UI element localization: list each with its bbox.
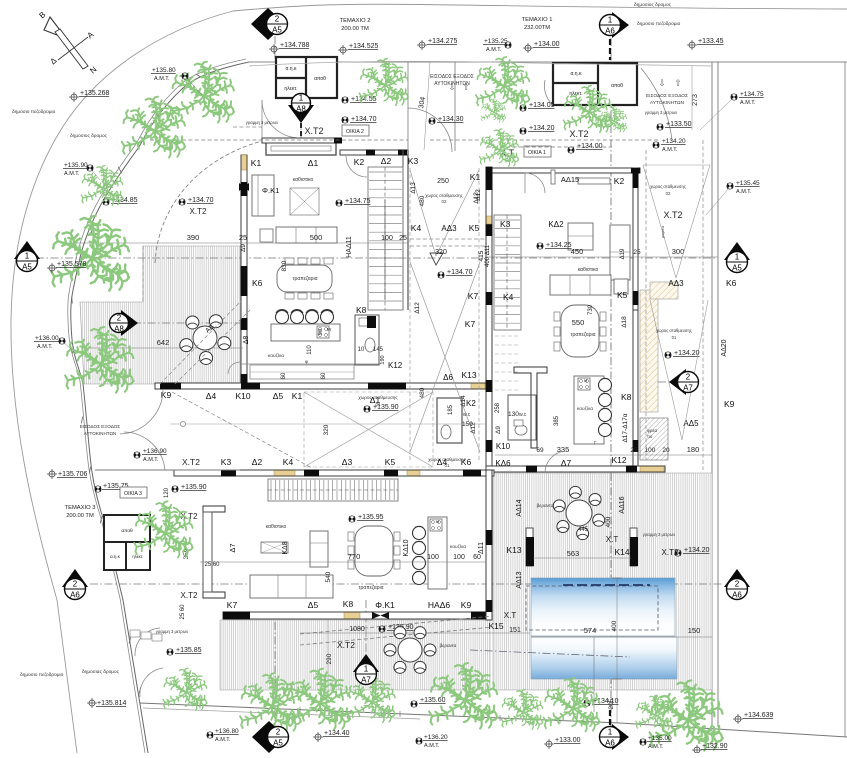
svg-text:+135.90: +135.90 (181, 484, 207, 491)
svg-text:+135.00: +135.00 (648, 735, 672, 742)
svg-text:+135.95: +135.95 (358, 514, 384, 521)
svg-text:ΑΔ3: ΑΔ3 (668, 279, 684, 288)
svg-text:+134.40: +134.40 (324, 730, 350, 737)
svg-text:Α.Μ.Τ.: Α.Μ.Τ. (740, 100, 756, 106)
svg-text:βεραντα: βεραντα (440, 643, 457, 648)
svg-text:K4: K4 (503, 292, 514, 302)
svg-text:130: 130 (508, 411, 519, 418)
svg-text:+134.20: +134.20 (662, 138, 686, 145)
svg-text:M: M (584, 378, 587, 383)
svg-text:αποθ: αποθ (314, 76, 326, 82)
svg-text:γραμμη 3 μετρων: γραμμη 3 μετρων (645, 110, 677, 115)
svg-text:Δ11: Δ11 (485, 244, 491, 255)
svg-text:K6: K6 (726, 278, 737, 288)
svg-text:Δ12: Δ12 (475, 189, 482, 201)
svg-text:ΕΙΣΟΔΟΣ ΕΞΟΔΟΣ: ΕΙΣΟΔΟΣ ΕΞΟΔΟΣ (80, 424, 120, 429)
svg-text:60: 60 (321, 372, 327, 379)
svg-text:α.η.κ: α.η.κ (571, 71, 582, 77)
svg-text:α.η.κ: α.η.κ (286, 66, 297, 72)
svg-text:69: 69 (536, 447, 544, 454)
svg-text:Α.Μ.Τ.: Α.Μ.Τ. (424, 743, 440, 749)
svg-text:60: 60 (281, 372, 287, 379)
svg-text:480: 480 (419, 195, 426, 206)
svg-text:+134.70: +134.70 (188, 197, 214, 204)
svg-text:καθιστικο: καθιστικο (578, 267, 599, 273)
svg-text:K8: K8 (343, 599, 354, 609)
svg-text:Δ7: Δ7 (561, 458, 572, 468)
svg-text:ΑΔ15: ΑΔ15 (561, 175, 579, 184)
svg-text:K15: K15 (488, 621, 503, 631)
svg-text:Α7: Α7 (683, 384, 693, 393)
svg-text:Δ4: Δ4 (206, 391, 217, 401)
svg-text:K4: K4 (283, 457, 294, 467)
svg-text:ΚΔ10: ΚΔ10 (403, 539, 410, 556)
svg-text:K8: K8 (356, 305, 367, 315)
svg-text:K7: K7 (227, 600, 238, 610)
svg-text:K4: K4 (411, 223, 422, 233)
svg-text:100: 100 (453, 554, 465, 561)
svg-text:w.c: w.c (463, 412, 471, 418)
svg-text:K12: K12 (388, 361, 403, 370)
svg-text:+136.20: +136.20 (424, 734, 448, 741)
svg-text:ΚΔ8: ΚΔ8 (282, 541, 289, 554)
svg-text:K3: K3 (408, 156, 419, 166)
svg-text:100: 100 (427, 554, 439, 561)
svg-text:+135.85: +135.85 (176, 647, 202, 654)
svg-text:Α.Μ.Τ.: Α.Μ.Τ. (648, 744, 664, 750)
svg-text:+134.525: +134.525 (349, 43, 378, 50)
svg-text:τιο: τιο (647, 434, 653, 439)
svg-text:Φ.Κ1: Φ.Κ1 (262, 186, 279, 195)
svg-text:02: 02 (442, 199, 447, 204)
svg-text:Δ9: Δ9 (495, 426, 502, 434)
svg-text:K1: K1 (470, 172, 481, 182)
svg-text:540: 540 (325, 571, 332, 582)
svg-text:+136.90: +136.90 (143, 448, 167, 455)
svg-text:320: 320 (435, 249, 447, 256)
svg-text:Α5: Α5 (732, 264, 742, 273)
svg-text:τραπεζαρια: τραπεζαρια (359, 585, 384, 591)
svg-text:1080: 1080 (349, 626, 365, 633)
svg-text:K6: K6 (461, 457, 472, 467)
svg-text:ΕΙΣΟΔΟΣ ΕΞΟΔΟΣ: ΕΙΣΟΔΟΣ ΕΞΟΔΟΣ (646, 93, 688, 99)
svg-text:150: 150 (688, 626, 701, 635)
svg-text:385: 385 (554, 415, 560, 426)
svg-text:+134.70: +134.70 (351, 116, 377, 123)
svg-text:ΑΔ3: ΑΔ3 (441, 224, 457, 233)
svg-text:X.T2: X.T2 (663, 210, 682, 220)
svg-text:χωρος σταθμευσης: χωρος σταθμευσης (650, 184, 686, 189)
svg-text:κουζίνα: κουζίνα (577, 406, 593, 412)
svg-text:X.T2: X.T2 (304, 126, 323, 136)
svg-text:250: 250 (437, 178, 449, 185)
svg-text:+134.30: +134.30 (438, 116, 464, 123)
svg-text:1: 1 (364, 665, 369, 674)
svg-text:δημοσιο πεζοδρομιο: δημοσιο πεζοδρομιο (20, 672, 64, 678)
svg-text:K7: K7 (468, 291, 479, 301)
svg-text:1: 1 (608, 728, 613, 737)
svg-text:ΑΔ14: ΑΔ14 (516, 499, 523, 516)
svg-text:+135.45: +135.45 (736, 180, 760, 187)
svg-text:φ: φ (305, 359, 308, 364)
svg-text:Α6: Α6 (605, 739, 615, 748)
svg-text:Φ.Κ1: Φ.Κ1 (375, 600, 395, 610)
svg-text:258: 258 (495, 402, 501, 413)
svg-text:Α.Μ.Τ.: Α.Μ.Τ. (64, 171, 80, 177)
svg-text:δημοσιας δρομος: δημοσιας δρομος (82, 669, 120, 675)
svg-text:+135.268: +135.268 (80, 90, 109, 97)
svg-text:Α.Μ.Τ.: Α.Μ.Τ. (662, 147, 678, 153)
svg-text:574: 574 (584, 626, 597, 635)
svg-text:K3: K3 (500, 219, 511, 229)
svg-text:730: 730 (588, 304, 594, 315)
svg-text:Α5: Α5 (272, 26, 282, 35)
svg-text:+134.05: +134.05 (529, 102, 555, 109)
svg-text:300: 300 (672, 247, 685, 256)
svg-text:232.00ΤΜ: 232.00ΤΜ (524, 25, 550, 31)
svg-text:w.c: w.c (519, 412, 527, 418)
svg-text:2: 2 (686, 373, 691, 382)
svg-text:ΗΑΔ6: ΗΑΔ6 (428, 600, 450, 610)
svg-text:+136.00: +136.00 (35, 335, 59, 342)
svg-text:ΑΥΤΟΚΙΝΗΤΩΝ: ΑΥΤΟΚΙΝΗΤΩΝ (434, 81, 470, 87)
svg-text:550: 550 (572, 318, 585, 327)
svg-text:200.00 ΤΜ: 200.00 ΤΜ (341, 26, 369, 32)
svg-text:1: 1 (299, 94, 304, 103)
svg-text:25: 25 (630, 447, 638, 454)
svg-text:X.T2: X.T2 (182, 457, 200, 467)
svg-text:K13: K13 (461, 370, 476, 380)
svg-text:ηλεκτ.: ηλεκτ. (284, 86, 297, 92)
svg-text:κουζίνα: κουζίνα (268, 353, 284, 359)
svg-text:Δ19: Δ19 (620, 248, 626, 259)
svg-text:+134.275: +134.275 (428, 38, 457, 45)
svg-text:Δ18: Δ18 (621, 316, 628, 328)
svg-text:+132.90: +132.90 (702, 743, 728, 750)
svg-text:K1: K1 (251, 158, 262, 168)
svg-text:Δ4: Δ4 (437, 457, 448, 467)
svg-text:450: 450 (571, 247, 584, 256)
svg-text:120: 120 (164, 487, 170, 498)
svg-text:563: 563 (567, 549, 580, 558)
svg-text:2: 2 (73, 580, 78, 589)
svg-text:+134.20: +134.20 (674, 350, 700, 357)
svg-text:δημοσιος δρομος: δημοσιος δρομος (634, 2, 672, 8)
svg-text:κουζίνα: κουζίνα (450, 544, 466, 550)
svg-text:⇩: ⇩ (658, 78, 666, 88)
svg-text:Α.Μ.Τ.: Α.Μ.Τ. (154, 76, 170, 82)
svg-text:K1: K1 (292, 391, 303, 401)
svg-text:02: 02 (666, 191, 671, 196)
svg-text:Α8: Α8 (114, 325, 124, 334)
svg-text:273: 273 (692, 94, 699, 106)
svg-text:ΚΔ6: ΚΔ6 (495, 459, 511, 468)
svg-text:K8: K8 (621, 392, 632, 402)
svg-text:K12: K12 (611, 455, 626, 465)
svg-text:Δ3: Δ3 (342, 457, 353, 467)
svg-text:Δ8: Δ8 (243, 336, 250, 345)
svg-text:X.T: X.T (606, 535, 619, 544)
svg-text:ΗΑΔ11: ΗΑΔ11 (346, 236, 353, 258)
svg-text:γραμμη 3 μετρων: γραμμη 3 μετρων (246, 120, 278, 125)
svg-text:K5: K5 (469, 223, 480, 233)
svg-text:αποθ: αποθ (611, 83, 623, 89)
svg-text:400: 400 (605, 516, 612, 527)
svg-text:ΑΔ20: ΑΔ20 (721, 339, 728, 356)
svg-text:K9: K9 (724, 399, 735, 409)
svg-text:200.00 ΤΜ: 200.00 ΤΜ (66, 513, 94, 519)
svg-text:ΤΕΜΑΧΙΟ 1: ΤΕΜΑΧΙΟ 1 (522, 17, 553, 23)
svg-text:+134.20: +134.20 (529, 125, 555, 132)
svg-text:25: 25 (239, 233, 247, 242)
svg-text:185: 185 (448, 404, 454, 415)
svg-text:K5: K5 (617, 290, 628, 300)
svg-text:α.η.κ: α.η.κ (110, 554, 121, 559)
svg-text:X.T2: X.T2 (190, 207, 207, 216)
svg-text:180: 180 (687, 445, 700, 454)
svg-text:Α.Μ.Τ.: Α.Μ.Τ. (143, 457, 159, 463)
svg-text:390: 390 (187, 233, 200, 242)
svg-text:γραμμη 3 μετρων: γραμμη 3 μετρων (643, 532, 675, 537)
svg-text:K9: K9 (461, 600, 472, 610)
svg-text:Δ5: Δ5 (273, 391, 284, 401)
svg-text:+135.60: +135.60 (420, 697, 446, 704)
svg-text:Δ5: Δ5 (308, 600, 319, 610)
svg-text:γραμμη 3 μετρων: γραμμη 3 μετρων (156, 629, 188, 634)
svg-text:ΚΔ2: ΚΔ2 (548, 220, 564, 229)
svg-text:Δ9: Δ9 (240, 244, 247, 252)
svg-text:ΤΕΜΑΧΙΟ 3: ΤΕΜΑΧΙΟ 3 (65, 505, 96, 511)
svg-text:+134.25: +134.25 (546, 242, 572, 249)
svg-text:+134.00: +134.00 (577, 143, 603, 150)
svg-text:642: 642 (157, 338, 170, 347)
svg-text:ΑΥΤΟΚΙΝΗΤΩΝ: ΑΥΤΟΚΙΝΗΤΩΝ (650, 100, 685, 106)
svg-text:δημοσιο πεζοδρομιο: δημοσιο πεζοδρομιο (12, 109, 56, 115)
svg-text:K13: K13 (506, 545, 521, 555)
svg-text:Δ12: Δ12 (470, 422, 477, 434)
svg-text:Δ7: Δ7 (228, 543, 237, 552)
svg-text:K10: K10 (496, 442, 511, 451)
svg-text:+133.00: +133.00 (555, 737, 581, 744)
svg-text:Δ1: Δ1 (308, 158, 319, 168)
svg-text:X.T: X.T (504, 611, 517, 620)
svg-text:ΟΙΚΙΑ 1: ΟΙΚΙΑ 1 (528, 150, 546, 156)
svg-text:1: 1 (25, 252, 30, 261)
svg-text:145: 145 (373, 347, 384, 353)
svg-text:25 60: 25 60 (204, 562, 220, 568)
svg-text:τραπεζαρια: τραπεζαρια (571, 332, 596, 338)
svg-text:+135.25: +135.25 (484, 38, 508, 45)
svg-text:Δ2: Δ2 (381, 156, 392, 166)
svg-text:Δ13: Δ13 (410, 182, 417, 194)
svg-text:K6: K6 (252, 278, 263, 288)
svg-text:90: 90 (318, 329, 324, 335)
svg-text:K10: K10 (235, 391, 250, 401)
svg-text:2: 2 (117, 314, 122, 323)
svg-text:1: 1 (735, 253, 740, 262)
svg-text:Α6: Α6 (732, 591, 742, 600)
svg-text:60: 60 (473, 554, 481, 561)
svg-text:445: 445 (578, 527, 589, 533)
svg-text:K2: K2 (354, 157, 365, 167)
svg-text:+134.75: +134.75 (740, 91, 764, 98)
svg-text:X.T2: X.T2 (569, 129, 588, 139)
svg-text:1: 1 (608, 16, 613, 25)
svg-text:καθιστικο: καθιστικο (266, 524, 287, 530)
svg-text:Α.Μ.Τ.: Α.Μ.Τ. (37, 344, 53, 350)
svg-text:ραμπα: ραμπα (660, 225, 665, 238)
svg-text:K14: K14 (614, 547, 629, 557)
svg-text:K3: K3 (221, 457, 232, 467)
svg-text:ΕΙΣΟΔΟΣ ΕΞΟΔΟΣ: ΕΙΣΟΔΟΣ ΕΞΟΔΟΣ (430, 74, 474, 80)
svg-text:+135.706: +135.706 (58, 471, 87, 478)
svg-text:+135.90: +135.90 (64, 162, 88, 169)
svg-text:Δ12: Δ12 (414, 302, 421, 314)
svg-text:10: 10 (358, 347, 365, 353)
svg-text:καθιστικο: καθιστικο (293, 177, 314, 183)
svg-text:ΑΔ16: ΑΔ16 (619, 496, 626, 513)
svg-text:βεραντα: βεραντα (537, 503, 554, 508)
svg-text:2: 2 (276, 728, 281, 737)
svg-text:αποθ: αποθ (121, 528, 133, 534)
svg-text:⇧: ⇧ (674, 78, 682, 88)
svg-text:Α6: Α6 (605, 27, 615, 36)
svg-text:Α5: Α5 (273, 739, 283, 748)
svg-text:415: 415 (478, 250, 485, 261)
svg-text:Δ2: Δ2 (252, 457, 263, 467)
svg-text:830: 830 (281, 260, 288, 271)
svg-text:Δ1: Δ1 (370, 395, 381, 405)
svg-text:K7: K7 (465, 319, 476, 329)
svg-text:Α.Μ.Τ.: Α.Μ.Τ. (215, 737, 231, 743)
svg-text:ΟΙΚΙΑ 3: ΟΙΚΙΑ 3 (124, 491, 142, 497)
svg-text:K2: K2 (466, 399, 476, 408)
svg-text:Α8: Α8 (296, 105, 306, 114)
svg-text:+134.70: +134.70 (447, 269, 473, 276)
svg-text:770: 770 (348, 552, 361, 561)
svg-text:ΤΕΜΑΧΙΟ 2: ΤΕΜΑΧΙΟ 2 (340, 18, 371, 24)
svg-text:K5: K5 (385, 457, 396, 467)
svg-text:Α.Μ.Τ.: Α.Μ.Τ. (486, 47, 502, 53)
svg-text:X.T2: X.T2 (337, 640, 355, 650)
svg-text:110: 110 (307, 345, 313, 355)
svg-text:+134.639: +134.639 (744, 712, 773, 719)
svg-text:400: 400 (485, 256, 491, 267)
svg-text:χωρος σταθμευσης: χωρος σταθμευσης (425, 193, 462, 198)
svg-text:+135.90: +135.90 (373, 404, 399, 411)
svg-text:320: 320 (323, 424, 330, 435)
svg-text:ΑΔ13: ΑΔ13 (516, 571, 523, 588)
svg-text:+134.75: +134.75 (345, 198, 371, 205)
svg-text:Δ17-Δ17α: Δ17-Δ17α (622, 413, 629, 442)
svg-text:M: M (436, 519, 439, 524)
svg-text:χωρος σταθμευσης: χωρος σταθμευσης (656, 328, 692, 333)
svg-text:δημοσιο πεζοδρομιο: δημοσιο πεζοδρομιο (637, 21, 681, 27)
svg-text:01: 01 (672, 335, 677, 340)
svg-text:2: 2 (275, 15, 280, 24)
svg-text:+134.20: +134.20 (684, 547, 710, 554)
svg-text:+133.50: +133.50 (666, 121, 692, 128)
svg-text:Α5: Α5 (22, 263, 32, 272)
svg-text:K2: K2 (614, 176, 625, 186)
svg-text:20: 20 (662, 447, 670, 454)
svg-text:25: 25 (633, 249, 641, 256)
svg-text:+136.80: +136.80 (215, 728, 239, 735)
svg-text:τραπεζαρια: τραπεζαρια (293, 276, 318, 282)
svg-text:ΑΥΤΟΚΙΝΗΤΩΝ: ΑΥΤΟΚΙΝΗΤΩΝ (84, 431, 117, 436)
svg-text:δημοσιος δρομος: δημοσιος δρομος (70, 133, 108, 139)
svg-text:Α.Μ.Τ.: Α.Μ.Τ. (736, 189, 752, 195)
svg-text:+135.80: +135.80 (152, 67, 176, 74)
svg-text:290: 290 (326, 653, 333, 664)
svg-text:+135.814: +135.814 (97, 700, 126, 707)
svg-text:500: 500 (310, 233, 323, 242)
svg-text:+133.45: +133.45 (698, 38, 724, 45)
svg-text:φρεα: φρεα (647, 428, 657, 433)
svg-text:+135.578: +135.578 (57, 261, 86, 268)
svg-text:X.T2: X.T2 (181, 591, 198, 600)
svg-text:ΟΙΚΙΑ 2: ΟΙΚΙΑ 2 (346, 129, 364, 135)
svg-text:Α7: Α7 (361, 676, 371, 685)
svg-text:190: 190 (380, 355, 386, 364)
svg-text:Δ11: Δ11 (478, 542, 485, 554)
svg-text:M: M (327, 327, 331, 332)
svg-text:Α6: Α6 (70, 591, 80, 600)
svg-text:+134.00: +134.00 (534, 41, 560, 48)
svg-text:+134.788: +134.788 (280, 42, 309, 49)
svg-text:ηλεκτ.: ηλεκτ. (132, 554, 143, 559)
svg-text:Δ6: Δ6 (443, 373, 453, 382)
svg-text:2: 2 (735, 580, 740, 589)
svg-text:25 60: 25 60 (180, 604, 186, 620)
